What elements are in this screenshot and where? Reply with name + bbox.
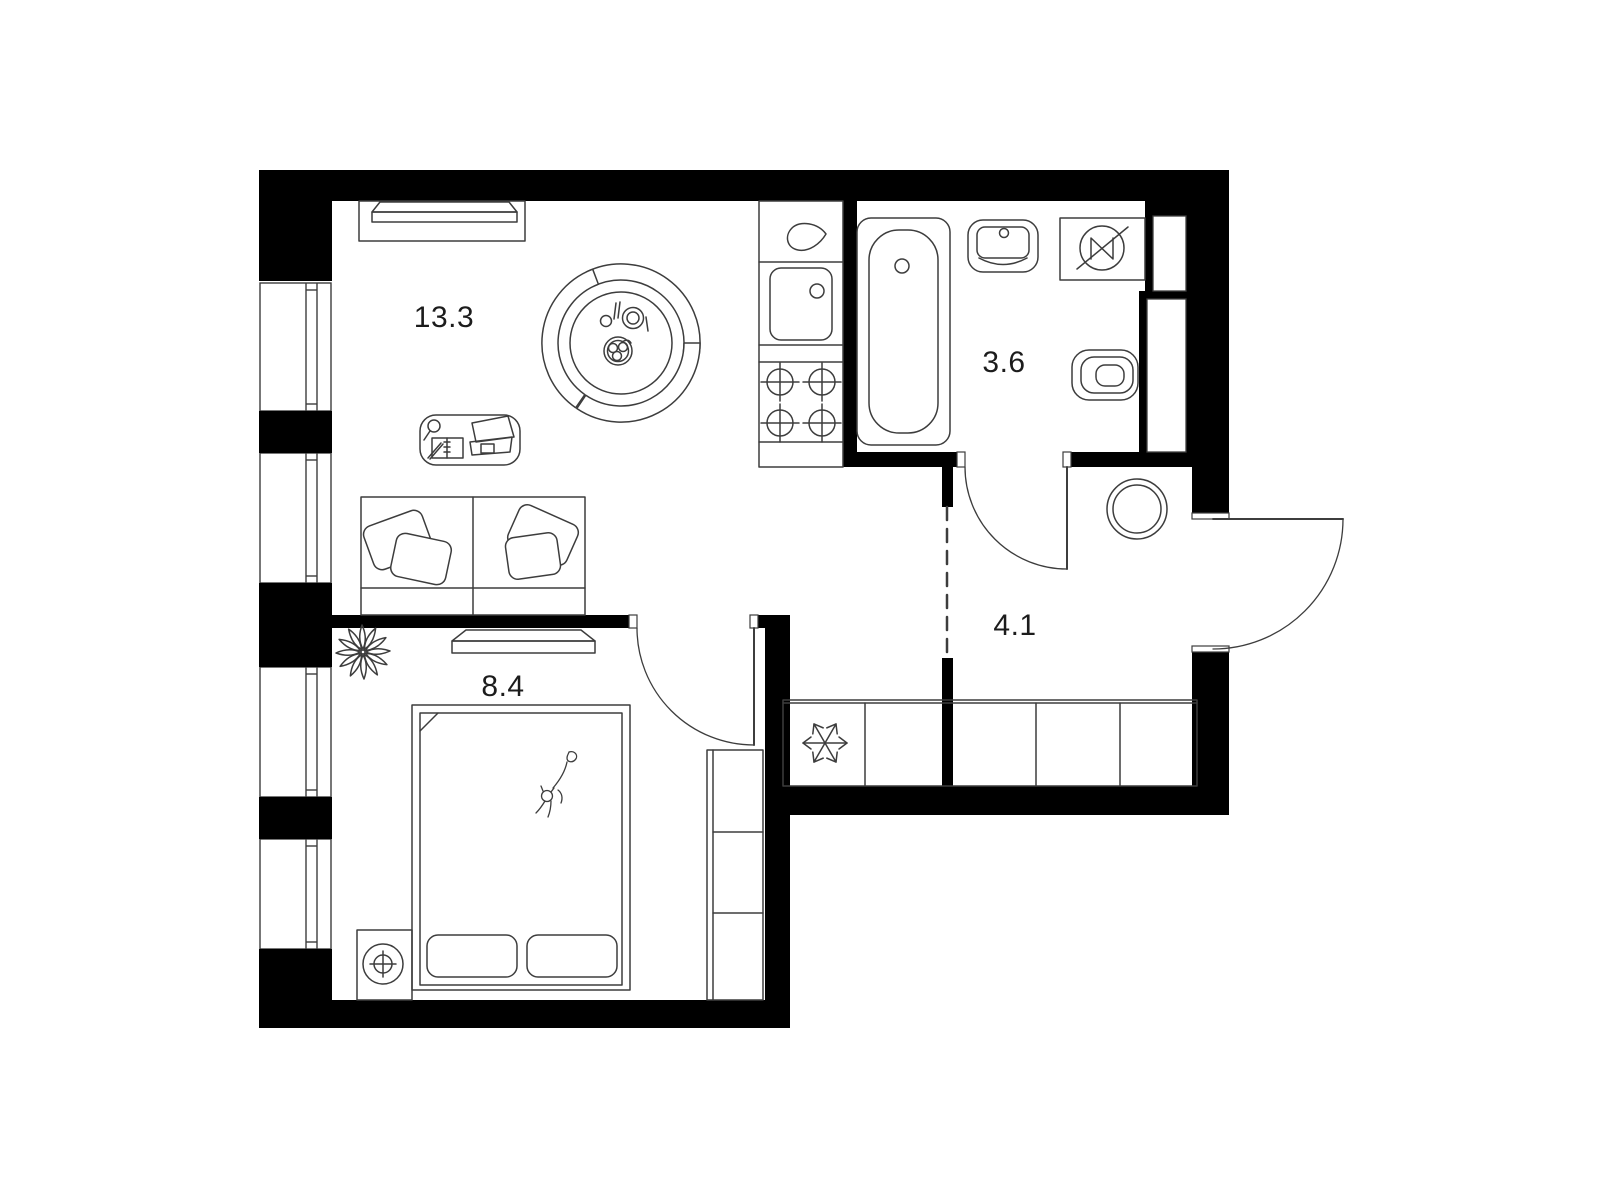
wall-left-corner bbox=[259, 201, 332, 281]
entry-door-swing-icon bbox=[1213, 519, 1343, 649]
wall-left-seg1 bbox=[259, 411, 332, 453]
floor-plan-drawing bbox=[0, 0, 1600, 1200]
door-jambs bbox=[629, 452, 1229, 652]
window-icon bbox=[260, 453, 331, 583]
cat-icon bbox=[536, 752, 577, 817]
dining-table-icon bbox=[534, 238, 724, 446]
door-swing-icon bbox=[965, 467, 1067, 569]
walls bbox=[259, 170, 1229, 1028]
fruit-bowl-icon bbox=[604, 337, 632, 365]
room-label-bathroom: 3.6 bbox=[982, 346, 1025, 380]
kitchen-faucet-icon bbox=[787, 223, 826, 250]
washing-machine-icon bbox=[1107, 479, 1167, 539]
pillow-icon bbox=[427, 935, 617, 977]
room-label-bedroom: 8.4 bbox=[481, 670, 524, 704]
pillow-icon bbox=[361, 502, 581, 586]
shaft-icon bbox=[1153, 216, 1186, 291]
wall-stub-upper bbox=[942, 467, 953, 507]
snowflake-fridge-icon bbox=[803, 721, 847, 765]
door-swing-icon bbox=[637, 628, 754, 745]
kitchen-sink-icon bbox=[770, 268, 832, 340]
shafts bbox=[1147, 216, 1186, 452]
wall-left-seg3 bbox=[259, 797, 332, 839]
room-label-living-kitchen: 13.3 bbox=[414, 301, 474, 335]
bathtub-icon bbox=[857, 218, 950, 445]
kitchen-counter bbox=[759, 201, 843, 467]
wall-bath-bottom-left bbox=[843, 452, 957, 467]
wall-kitchen-bath bbox=[843, 201, 857, 452]
wall-hallway-bottom bbox=[765, 786, 1229, 815]
room-label-hallway: 4.1 bbox=[993, 609, 1036, 643]
notebook-icon bbox=[428, 438, 463, 459]
bed-icon bbox=[412, 705, 630, 990]
window-icon bbox=[260, 667, 331, 797]
floor-plan-canvas: 13.3 3.6 4.1 8.4 bbox=[0, 0, 1600, 1200]
wall-top bbox=[259, 170, 1229, 201]
laptop-icon bbox=[470, 416, 514, 455]
jamb-bath-right bbox=[1063, 452, 1071, 467]
tv-cabinet-icon bbox=[359, 201, 525, 241]
washbasin-icon bbox=[968, 220, 1038, 272]
electrical-panel-icon bbox=[1060, 218, 1145, 280]
wall-partition-right bbox=[758, 615, 765, 628]
wall-bedroom-bottom bbox=[259, 1000, 790, 1028]
wall-partition-left bbox=[332, 615, 629, 628]
wall-bedroom-right bbox=[765, 615, 790, 1028]
nightstand-lamp-icon bbox=[357, 930, 412, 1000]
window-icon bbox=[260, 283, 331, 411]
jamb-bedroom-left bbox=[629, 615, 637, 628]
tv-icon bbox=[372, 202, 517, 222]
sofa-icon bbox=[361, 497, 585, 615]
stove-icon bbox=[761, 363, 841, 442]
tv-icon bbox=[452, 630, 595, 653]
plant-icon bbox=[336, 625, 390, 679]
desk-icon bbox=[420, 415, 520, 465]
jamb-bedroom-right bbox=[750, 615, 758, 628]
magnifier-icon bbox=[424, 420, 440, 440]
wall-stub-lower bbox=[942, 658, 953, 786]
shaft-icon bbox=[1147, 299, 1186, 452]
toilet-icon bbox=[1072, 350, 1138, 400]
wall-right-top bbox=[1192, 170, 1229, 513]
wall-bath-bottom-right bbox=[1071, 452, 1192, 467]
jamb-bath-left bbox=[957, 452, 965, 467]
wardrobe-icon bbox=[707, 750, 763, 1000]
wall-left-seg2 bbox=[259, 583, 332, 667]
window-icon bbox=[260, 839, 331, 949]
